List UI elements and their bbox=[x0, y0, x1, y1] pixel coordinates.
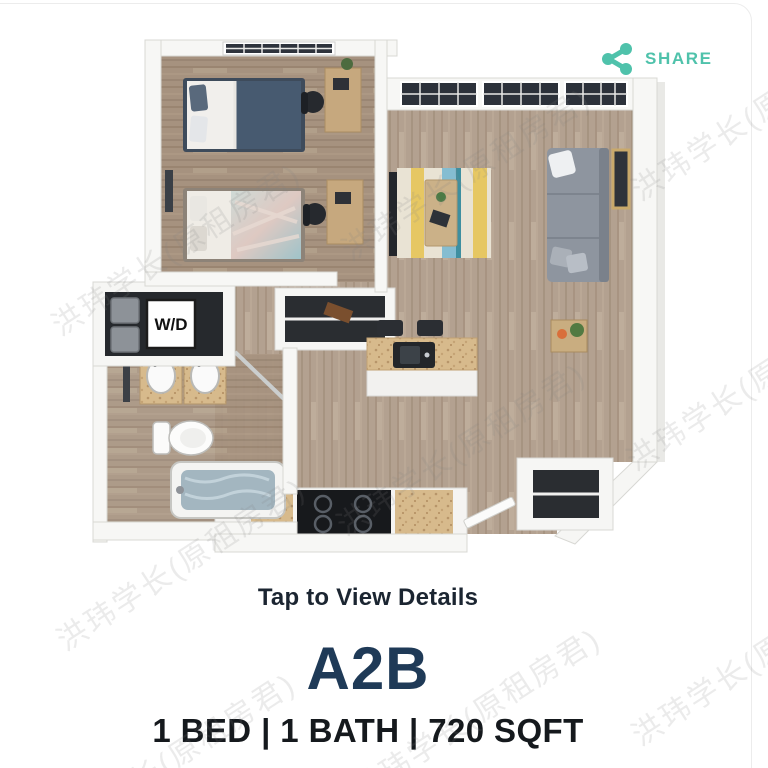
bar-stool bbox=[377, 320, 403, 336]
wd-closet: W/D bbox=[93, 282, 235, 366]
toilet bbox=[153, 421, 213, 455]
sofa bbox=[547, 148, 609, 282]
floorplan-image[interactable]: W/D bbox=[85, 22, 665, 567]
wd-sign-label: W/D bbox=[154, 315, 187, 334]
side-table bbox=[551, 320, 587, 352]
coffee-table bbox=[425, 180, 457, 246]
bedroom-window bbox=[223, 42, 335, 55]
bed-pastel bbox=[183, 188, 305, 262]
plan-name: A2B bbox=[0, 634, 736, 703]
floorplan-page: SHARE bbox=[0, 0, 768, 768]
bar-stool bbox=[417, 320, 443, 336]
wall-art bbox=[613, 150, 629, 208]
living-windows bbox=[401, 82, 627, 106]
bathtub bbox=[171, 462, 285, 518]
tap-to-view-details[interactable]: Tap to View Details bbox=[0, 584, 736, 612]
wall-art-frames bbox=[165, 170, 173, 212]
bed-navy bbox=[183, 78, 305, 152]
plan-specs: 1 BED | 1 BATH | 720 SQFT bbox=[0, 712, 736, 750]
